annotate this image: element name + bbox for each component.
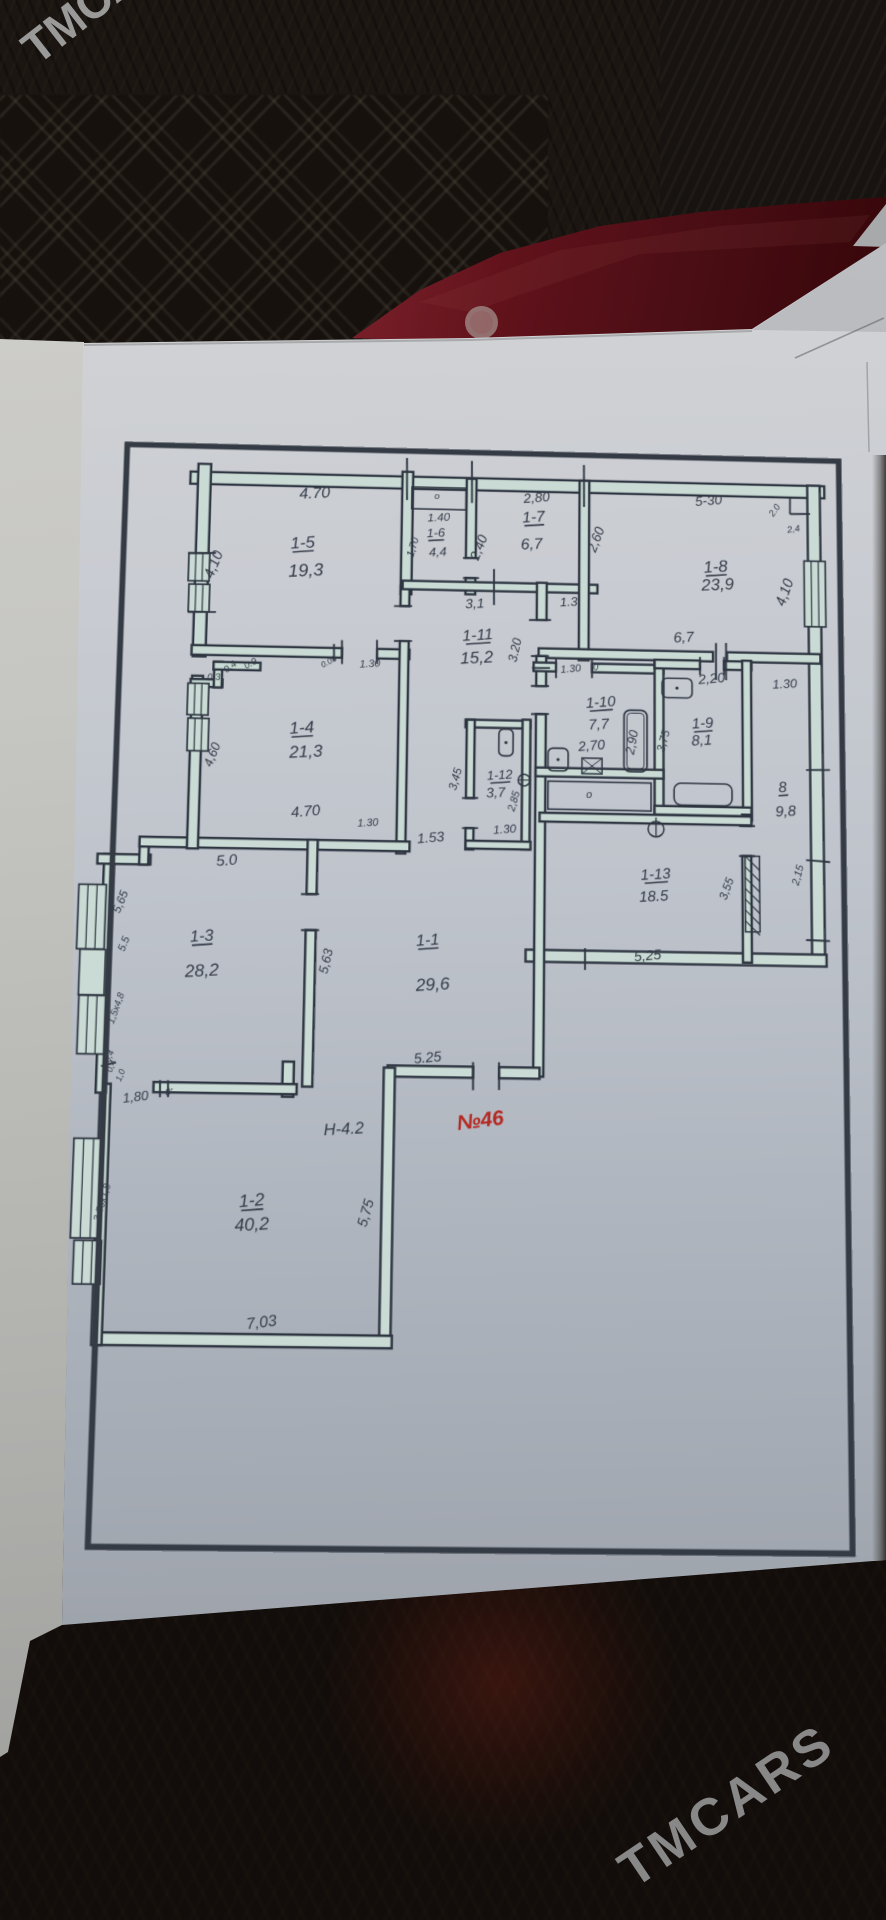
- svg-text:40,2: 40,2: [234, 1214, 269, 1236]
- svg-text:9,8: 9,8: [775, 803, 797, 820]
- svg-text:19,3: 19,3: [288, 559, 324, 581]
- svg-text:1.3: 1.3: [559, 595, 578, 610]
- svg-text:18.5: 18.5: [639, 888, 669, 906]
- svg-text:6,7: 6,7: [520, 536, 543, 554]
- svg-text:1-4: 1-4: [289, 718, 315, 738]
- svg-text:1-5: 1-5: [290, 533, 317, 553]
- svg-text:1-8: 1-8: [703, 557, 729, 576]
- svg-text:7,03: 7,03: [245, 1312, 277, 1334]
- svg-text:3.20: 3.20: [505, 637, 525, 664]
- svg-text:1.30: 1.30: [493, 823, 518, 837]
- svg-text:1-12: 1-12: [486, 767, 513, 783]
- svg-text:3,45: 3,45: [447, 766, 466, 792]
- svg-text:1-6: 1-6: [426, 526, 445, 541]
- svg-text:2,70: 2,70: [576, 737, 606, 755]
- svg-text:7,7: 7,7: [588, 716, 611, 733]
- svg-text:0': 0': [593, 662, 601, 673]
- svg-text:1,80: 1,80: [122, 1088, 150, 1106]
- svg-text:0': 0': [165, 1086, 173, 1097]
- svg-text:15,2: 15,2: [460, 648, 494, 668]
- svg-text:4.70: 4.70: [299, 484, 331, 502]
- svg-text:1.30: 1.30: [359, 658, 381, 670]
- svg-text:4,4: 4,4: [429, 545, 448, 560]
- svg-text:5-30: 5-30: [694, 492, 723, 509]
- svg-text:1-7: 1-7: [522, 508, 547, 526]
- svg-text:2,20: 2,20: [696, 670, 726, 687]
- svg-text:2.0: 2.0: [766, 502, 783, 520]
- svg-text:4,10: 4,10: [773, 577, 798, 609]
- svg-text:1.30: 1.30: [772, 676, 798, 691]
- svg-text:o: o: [434, 491, 439, 501]
- svg-text:4.70: 4.70: [290, 802, 321, 821]
- svg-text:8,1: 8,1: [691, 732, 713, 749]
- svg-text:2,15: 2,15: [790, 864, 807, 888]
- svg-text:№46: №46: [455, 1106, 505, 1135]
- svg-text:5,63: 5,63: [316, 947, 336, 975]
- svg-text:0.3: 0.3: [207, 672, 222, 683]
- svg-text:29,6: 29,6: [414, 974, 451, 995]
- svg-text:5,25: 5,25: [633, 946, 662, 964]
- svg-text:28,2: 28,2: [183, 960, 219, 981]
- svg-text:5.0: 5.0: [216, 852, 238, 870]
- svg-text:Н-4.2: Н-4.2: [323, 1119, 365, 1140]
- svg-text:6,7: 6,7: [673, 629, 696, 646]
- svg-text:5,75: 5,75: [354, 1197, 378, 1229]
- svg-text:2,4: 2,4: [785, 523, 801, 535]
- svg-text:1.30: 1.30: [357, 817, 379, 829]
- svg-text:3,7: 3,7: [486, 784, 507, 800]
- svg-text:5.5: 5.5: [116, 935, 133, 953]
- svg-text:3,1: 3,1: [465, 595, 485, 611]
- svg-text:1,0: 1,0: [114, 1067, 128, 1082]
- svg-text:1.53: 1.53: [416, 829, 445, 847]
- svg-text:1-2: 1-2: [238, 1190, 265, 1211]
- svg-text:2,90: 2,90: [622, 729, 641, 757]
- svg-text:23,9: 23,9: [700, 575, 735, 595]
- svg-text:3,55: 3,55: [717, 875, 737, 901]
- svg-text:21,3: 21,3: [288, 742, 323, 762]
- svg-text:1-1: 1-1: [415, 931, 440, 950]
- svg-text:1.40: 1.40: [427, 512, 451, 525]
- svg-text:8: 8: [778, 779, 788, 796]
- svg-text:2,85: 2,85: [506, 790, 523, 814]
- svg-text:o: o: [586, 790, 592, 801]
- svg-text:5.25: 5.25: [413, 1048, 443, 1066]
- svg-text:2,80: 2,80: [522, 489, 552, 506]
- svg-text:1.30: 1.30: [560, 663, 582, 676]
